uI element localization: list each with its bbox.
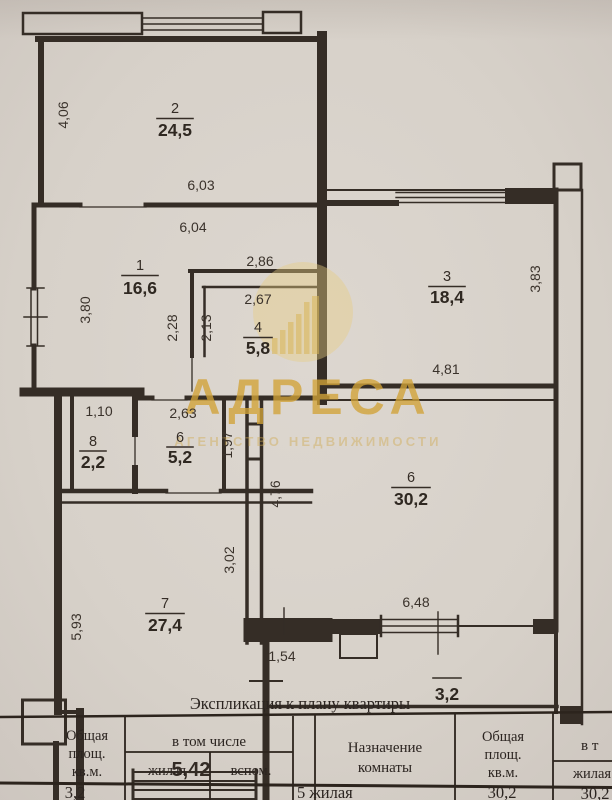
header-auxiliary: вспом. (231, 763, 272, 779)
cell-total-area: 3,2 (65, 783, 86, 800)
scanned-floor-plan-page: АДРЕСА АГЕНТСТВО НЕДВИЖИМОСТИ 2 24,5 1 1… (0, 0, 612, 800)
dimension-label: 3,80 (77, 296, 93, 323)
header-including: в том числе (172, 734, 246, 750)
dimension-label: 1,97 (219, 431, 235, 458)
cell-living2: 30,2 (581, 784, 610, 800)
dimension-label: 6,04 (179, 219, 206, 235)
room-number: 6 (176, 430, 184, 446)
watermark-subtitle: АГЕНТСТВО НЕДВИЖИМОСТИ (174, 434, 441, 449)
cell-total-area2: 30,2 (488, 783, 517, 800)
room-area: 27,4 (148, 615, 182, 635)
header-total-area-line3: кв.м. (72, 764, 102, 780)
dimension-label: 4,06 (55, 101, 71, 128)
dimension-label: 2,63 (169, 405, 196, 421)
room-area: 30,2 (394, 489, 428, 509)
header-total-area2-line1: Общая (482, 729, 524, 745)
header-purpose-line2: комнаты (358, 760, 412, 776)
room-area: 5,2 (168, 447, 193, 467)
header-purpose-line1: Назначение (348, 740, 423, 756)
watermark-brand: АДРЕСА (184, 369, 431, 425)
room-area: 3,2 (435, 684, 460, 704)
apartment-floor-plan-scan: АДРЕСА АГЕНТСТВО НЕДВИЖИМОСТИ 2 24,5 1 1… (0, 0, 612, 800)
room-number: 2 (171, 101, 179, 117)
dimension-label: 2,67 (244, 291, 271, 307)
cell-purpose: 5 жилая (297, 783, 353, 800)
dimension-label: 1,10 (85, 403, 112, 419)
room-number: 8 (89, 434, 97, 450)
dimension-label: 4,76 (267, 480, 283, 507)
dimension-label: 2,86 (246, 253, 273, 269)
dimension-label: 2,13 (198, 314, 214, 341)
room-number: 6 (407, 470, 415, 486)
dimension-label: 6,03 (187, 177, 214, 193)
room-area: 24,5 (158, 120, 192, 140)
dimension-label: 1,54 (268, 648, 295, 664)
room-area: 18,4 (430, 287, 464, 307)
dimension-label: 3,83 (527, 265, 543, 292)
room-number: 1 (136, 258, 144, 274)
dimension-label: 3,02 (221, 546, 237, 573)
table-title: Экспликация к плану квартиры (190, 694, 410, 713)
room-area: 5,8 (246, 338, 271, 358)
header-total-area-line2: площ. (68, 746, 105, 762)
room-number: 4 (254, 320, 262, 336)
dimension-label: 5,93 (68, 613, 84, 640)
room-area: 2,2 (81, 452, 106, 472)
room-number: 3 (443, 269, 451, 285)
dimension-label: 2,28 (164, 314, 180, 341)
dimension-label: 4,81 (432, 361, 459, 377)
header-total-area2-line3: кв.м. (488, 765, 518, 781)
header-total-area2-line2: площ. (484, 747, 521, 763)
header-living: жилая (147, 763, 186, 779)
room-area: 16,6 (123, 278, 157, 298)
room-number: 7 (161, 596, 169, 612)
header-living2: жилая (572, 766, 611, 782)
header-total-area-line1: Общая (66, 728, 108, 744)
dimension-label: 6,48 (402, 594, 429, 610)
header-including2: в т (581, 738, 599, 754)
